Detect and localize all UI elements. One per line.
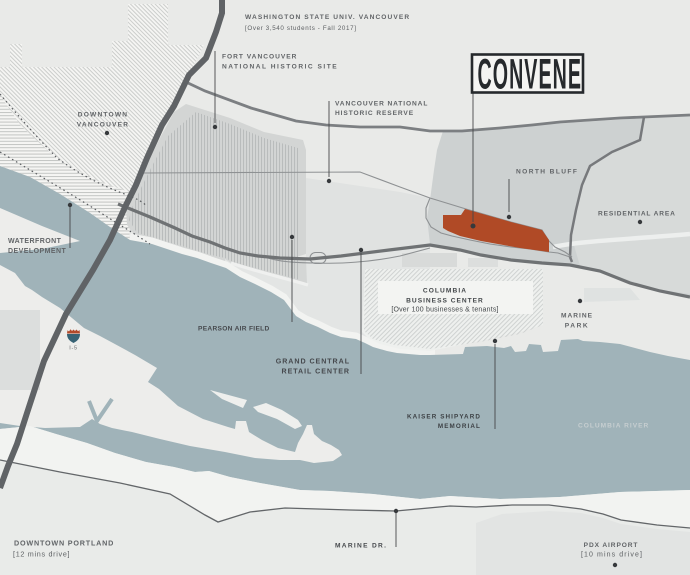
svg-text:[Over 100 businesses & tenants: [Over 100 businesses & tenants] <box>391 307 498 314</box>
svg-text:COLUMBIA: COLUMBIA <box>423 288 467 295</box>
svg-text:I-5: I-5 <box>69 346 78 352</box>
svg-text:VANCOUVER: VANCOUVER <box>77 122 129 129</box>
svg-text:NORTH BLUFF: NORTH BLUFF <box>516 169 578 176</box>
svg-text:KAISER SHIPYARD: KAISER SHIPYARD <box>407 414 481 421</box>
svg-text:PDX AIRPORT: PDX AIRPORT <box>584 542 639 549</box>
svg-text:GRAND CENTRAL: GRAND CENTRAL <box>276 358 350 366</box>
svg-text:DOWNTOWN PORTLAND: DOWNTOWN PORTLAND <box>14 539 114 548</box>
svg-text:FORT VANCOUVER: FORT VANCOUVER <box>222 54 297 61</box>
svg-text:NATIONAL HISTORIC SITE: NATIONAL HISTORIC SITE <box>222 64 338 71</box>
svg-text:HISTORIC RESERVE: HISTORIC RESERVE <box>335 110 414 117</box>
svg-text:BUSINESS CENTER: BUSINESS CENTER <box>406 298 484 305</box>
svg-text:VANCOUVER NATIONAL: VANCOUVER NATIONAL <box>335 101 428 108</box>
svg-text:RESIDENTIAL AREA: RESIDENTIAL AREA <box>598 211 676 218</box>
svg-text:[12 mins drive]: [12 mins drive] <box>13 550 70 559</box>
svg-text:[Over 3,540 students - Fall 20: [Over 3,540 students - Fall 2017] <box>245 25 357 32</box>
svg-text:[10 mins drive]: [10 mins drive] <box>581 552 643 559</box>
svg-text:DEVELOPMENT: DEVELOPMENT <box>8 248 67 255</box>
svg-text:MARINE: MARINE <box>561 313 593 320</box>
svg-text:DOWNTOWN: DOWNTOWN <box>78 112 129 119</box>
svg-text:CONVENE: CONVENE <box>478 51 582 99</box>
svg-text:RETAIL CENTER: RETAIL CENTER <box>282 368 350 376</box>
svg-text:WATERFRONT: WATERFRONT <box>8 238 62 245</box>
svg-text:MARINE DR.: MARINE DR. <box>335 543 387 550</box>
svg-text:PEARSON AIR FIELD: PEARSON AIR FIELD <box>198 326 270 333</box>
svg-text:MEMORIAL: MEMORIAL <box>438 423 481 430</box>
svg-text:PARK: PARK <box>565 323 590 330</box>
svg-text:COLUMBIA RIVER: COLUMBIA RIVER <box>578 423 649 430</box>
svg-text:WASHINGTON STATE UNIV. VANCOUV: WASHINGTON STATE UNIV. VANCOUVER <box>245 14 410 21</box>
